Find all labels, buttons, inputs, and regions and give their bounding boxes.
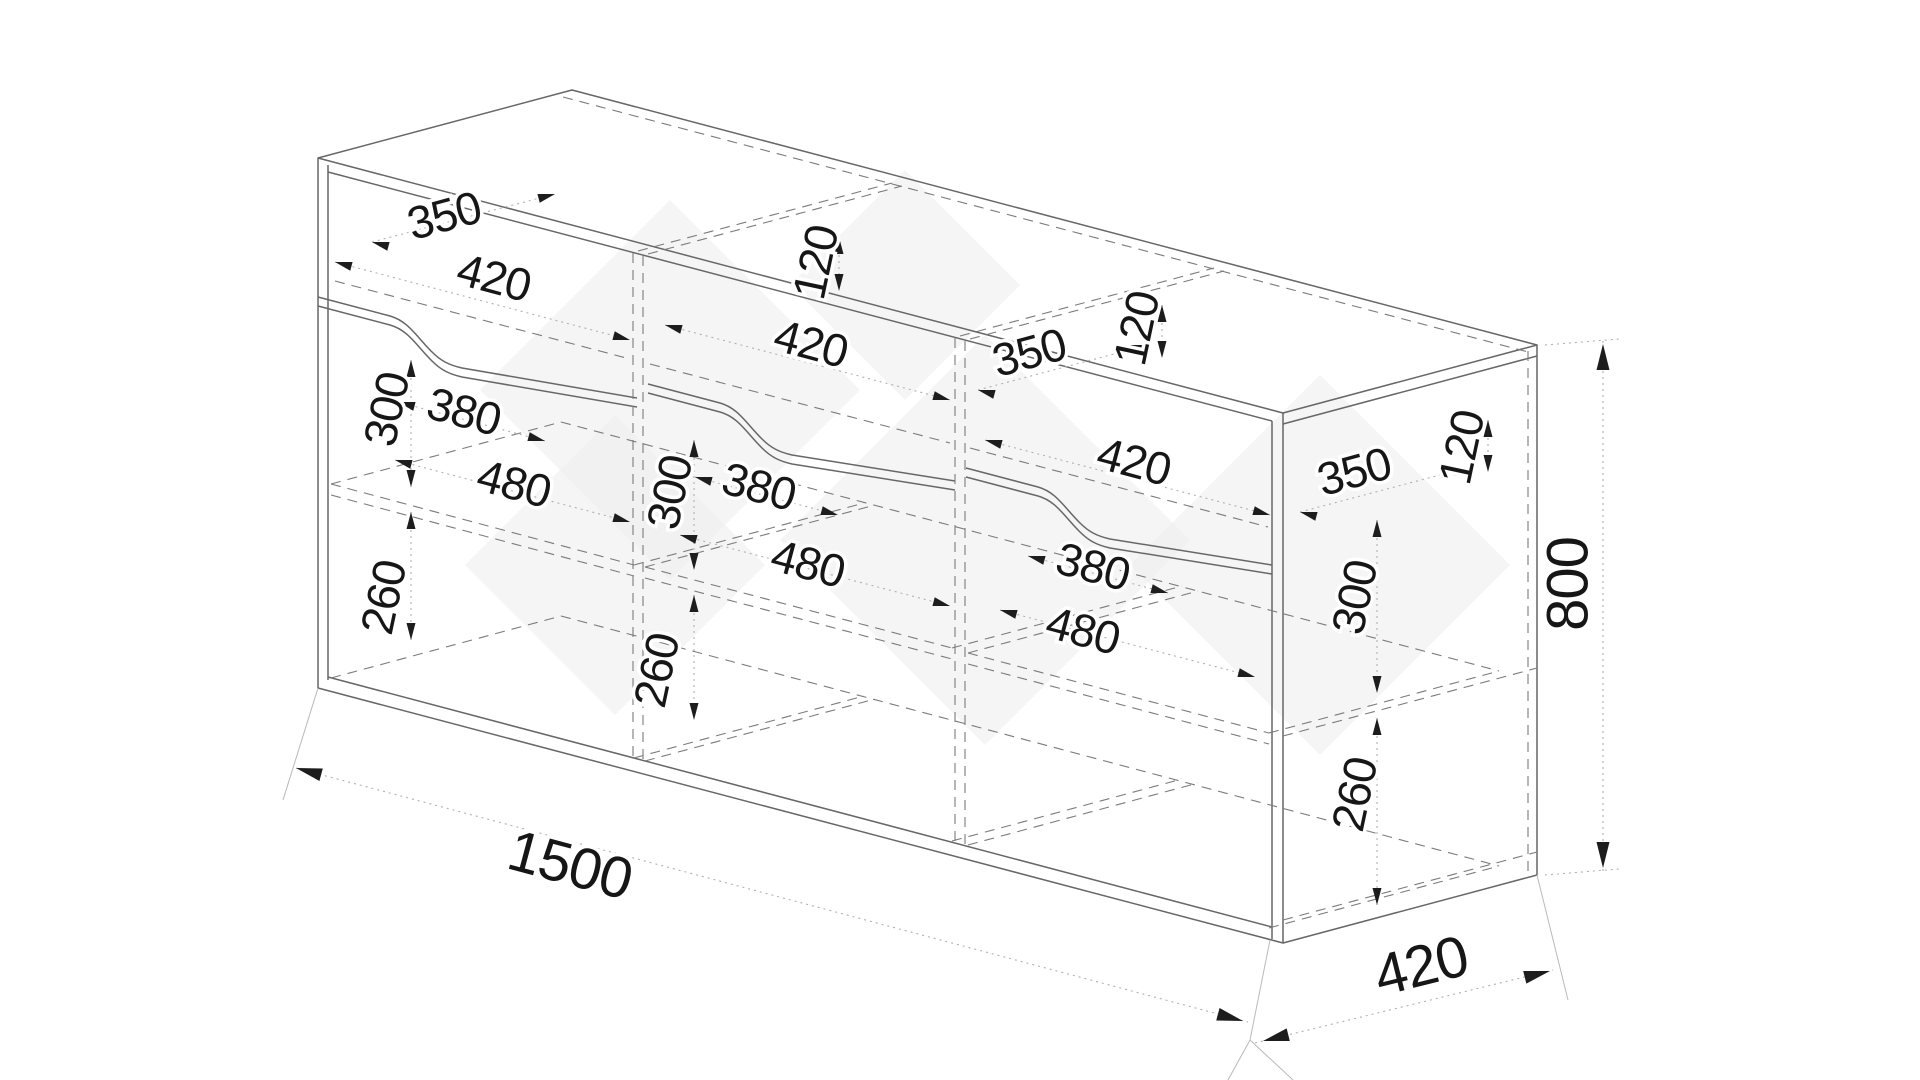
extension-line: [1537, 875, 1568, 1000]
dimension-arrow: [690, 703, 699, 720]
dimension-label-bay1-upper-height: 300: [353, 368, 419, 451]
dimension-arrow: [1216, 1008, 1244, 1027]
extension-line: [1250, 940, 1270, 1040]
cabinet-edge: [328, 677, 1272, 927]
dimension-label-overall-width: 1500: [501, 817, 639, 912]
dimension-label-drawer3-height: 120: [1103, 287, 1169, 370]
dimension-arrow: [1373, 718, 1382, 735]
dimension-arrow: [394, 456, 413, 469]
dimension-label-overall-depth: 420: [1368, 923, 1475, 1009]
dimension-label-bay1-lower-height: 260: [350, 556, 416, 639]
dimension-arrow: [371, 238, 390, 251]
dimension-label-side-drawer-height: 120: [1428, 406, 1494, 489]
dimension-label-drawer2-depth: 350: [987, 318, 1072, 387]
dimension-arrow: [537, 190, 556, 203]
dimension-line: [296, 768, 1248, 1022]
dimension-extension-lines: [283, 688, 1568, 1080]
dimension-label-bay1-width: 480: [472, 449, 557, 518]
dimension-label-overall-height: 800: [1535, 537, 1600, 631]
hidden-edge: [1283, 852, 1537, 920]
dimension-label-side-lower-height: 260: [1321, 753, 1387, 836]
dimension-arrow: [334, 258, 353, 271]
dimension-line: [1545, 339, 1619, 345]
dimension-label-drawer1-width: 420: [452, 243, 537, 312]
technical-drawing-page: 3504201204203501204203501203003804802603…: [0, 0, 1920, 1080]
hidden-edge: [645, 699, 875, 761]
dimension-arrow: [294, 762, 322, 781]
dimension-arrow: [1261, 1028, 1289, 1047]
extension-line: [1250, 1040, 1293, 1080]
hidden-edge: [952, 779, 1182, 841]
extension-line: [1228, 1040, 1250, 1080]
dimension-arrow: [407, 623, 416, 640]
hidden-edge: [968, 783, 1198, 845]
hidden-edge: [1269, 866, 1499, 928]
extension-line: [283, 688, 318, 800]
sideboard-dimension-drawing: 3504201204203501204203501203003804802603…: [0, 0, 1920, 1080]
dimension-line: [1545, 869, 1619, 875]
dimension-arrow: [1373, 888, 1382, 905]
dimension-arrow: [1597, 344, 1610, 370]
dimension-arrow: [1523, 965, 1551, 984]
dimension-arrow: [407, 470, 416, 487]
dimension-arrow: [407, 360, 416, 377]
dimension-label-drawer1-depth: 350: [402, 181, 487, 250]
dimension-arrow: [407, 512, 416, 529]
dimension-arrow: [1597, 842, 1610, 868]
